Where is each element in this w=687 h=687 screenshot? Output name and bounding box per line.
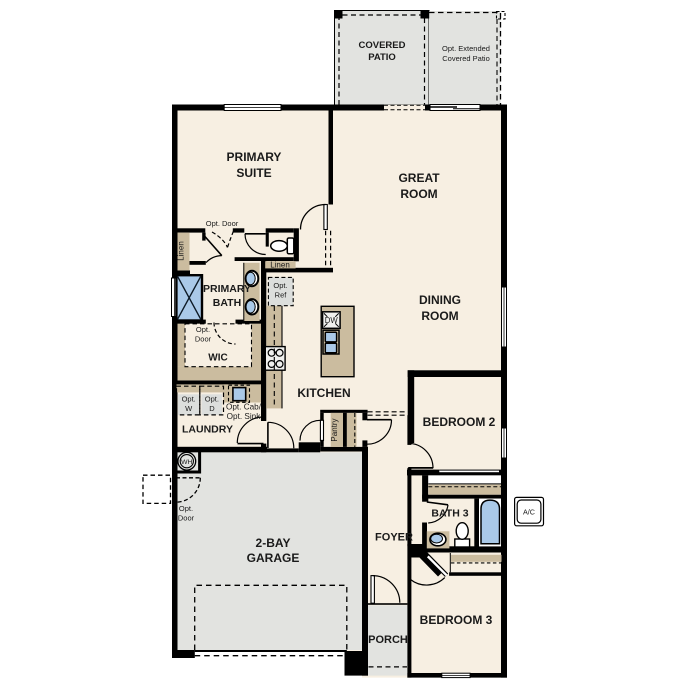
svg-text:Opt.: Opt. (179, 504, 193, 513)
svg-text:Opt. Door: Opt. Door (206, 219, 239, 228)
svg-text:Linen: Linen (177, 241, 186, 261)
svg-text:W: W (185, 404, 193, 413)
svg-text:Linen: Linen (270, 261, 290, 270)
svg-text:Opt. Cab/: Opt. Cab/ (226, 403, 262, 412)
svg-text:KITCHEN: KITCHEN (297, 386, 350, 400)
svg-text:COVERED: COVERED (359, 40, 406, 51)
svg-text:PORCH: PORCH (368, 634, 408, 646)
svg-text:2-BAY: 2-BAY (256, 536, 291, 550)
svg-text:Opt.: Opt. (196, 325, 210, 334)
svg-text:PRIMARY: PRIMARY (227, 150, 282, 164)
svg-text:ROOM: ROOM (421, 309, 458, 323)
svg-text:PATIO: PATIO (368, 52, 396, 63)
svg-text:LAUNDRY: LAUNDRY (182, 424, 233, 436)
svg-text:Opt. Extended: Opt. Extended (442, 44, 490, 53)
svg-text:WH: WH (181, 459, 192, 466)
svg-text:BEDROOM 3: BEDROOM 3 (420, 613, 493, 627)
svg-text:Opt.: Opt. (205, 395, 219, 404)
svg-text:GARAGE: GARAGE (247, 551, 300, 565)
svg-text:BEDROOM 2: BEDROOM 2 (423, 415, 496, 429)
svg-text:D: D (209, 404, 215, 413)
svg-text:FOYER: FOYER (375, 532, 413, 544)
svg-text:Covered Patio: Covered Patio (442, 54, 490, 63)
svg-text:SUITE: SUITE (236, 166, 271, 180)
svg-text:Pantry: Pantry (330, 418, 339, 441)
svg-text:DINING: DINING (419, 293, 461, 307)
svg-text:WIC: WIC (208, 353, 227, 364)
svg-text:GREAT: GREAT (398, 171, 440, 185)
svg-text:BATH 3: BATH 3 (431, 508, 468, 520)
svg-text:DW: DW (325, 316, 339, 325)
svg-text:Opt. Sink: Opt. Sink (227, 412, 262, 421)
svg-text:BATH: BATH (213, 297, 241, 309)
svg-text:A/C: A/C (523, 507, 535, 516)
svg-text:ROOM: ROOM (400, 187, 437, 201)
svg-text:Door: Door (178, 514, 195, 523)
svg-text:Ref: Ref (275, 291, 288, 300)
svg-text:Opt.: Opt. (182, 395, 196, 404)
svg-text:Door: Door (195, 335, 212, 344)
svg-text:Opt.: Opt. (273, 281, 287, 290)
svg-text:PRIMARY: PRIMARY (203, 283, 251, 295)
